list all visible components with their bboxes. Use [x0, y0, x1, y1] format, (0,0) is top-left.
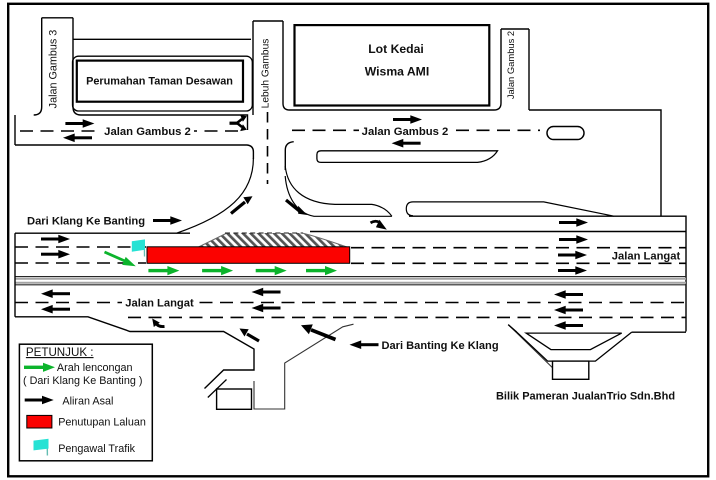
svg-text:Jalan Langat: Jalan Langat: [125, 298, 194, 310]
svg-text:Wisma AMI: Wisma AMI: [365, 65, 429, 79]
svg-text:Aliran Asal: Aliran Asal: [62, 396, 113, 408]
svg-text:PETUNJUK :: PETUNJUK :: [26, 346, 94, 359]
svg-text:Perumahan Taman Desawan: Perumahan Taman Desawan: [86, 76, 233, 88]
svg-text:Penutupan Laluan: Penutupan Laluan: [58, 417, 146, 429]
svg-text:Jalan Gambus 2: Jalan Gambus 2: [104, 126, 191, 138]
svg-text:Lebuh Gambus: Lebuh Gambus: [261, 39, 272, 109]
svg-text:Dari Klang Ke Banting: Dari Klang Ke Banting: [27, 215, 145, 227]
svg-text:Bilik Pameran JualanTrio Sdn.B: Bilik Pameran JualanTrio Sdn.Bhd: [496, 390, 675, 402]
svg-text:Dari Banting Ke Klang: Dari Banting Ke Klang: [382, 340, 499, 352]
svg-text:Jalan Gambus 2: Jalan Gambus 2: [362, 126, 449, 138]
svg-text:Pengawal Trafik: Pengawal Trafik: [58, 443, 135, 455]
svg-text:Jalan Langat: Jalan Langat: [612, 250, 681, 262]
svg-text:Jalan Gambus 2: Jalan Gambus 2: [505, 31, 516, 99]
svg-text:Jalan Gambus 3: Jalan Gambus 3: [48, 30, 60, 109]
svg-text:Arah lencongan: Arah lencongan: [57, 362, 133, 374]
svg-text:Lot Kedai: Lot Kedai: [368, 42, 424, 56]
svg-text:( Dari Klang Ke Banting ): ( Dari Klang Ke Banting ): [23, 375, 142, 387]
